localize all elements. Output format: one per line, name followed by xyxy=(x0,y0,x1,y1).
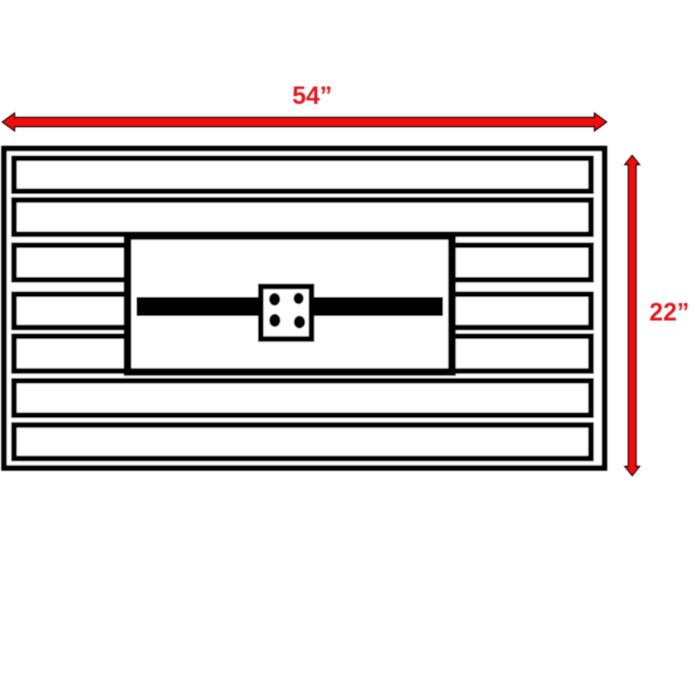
svg-text:22”: 22” xyxy=(649,300,689,327)
svg-text:54”: 54” xyxy=(292,83,332,110)
